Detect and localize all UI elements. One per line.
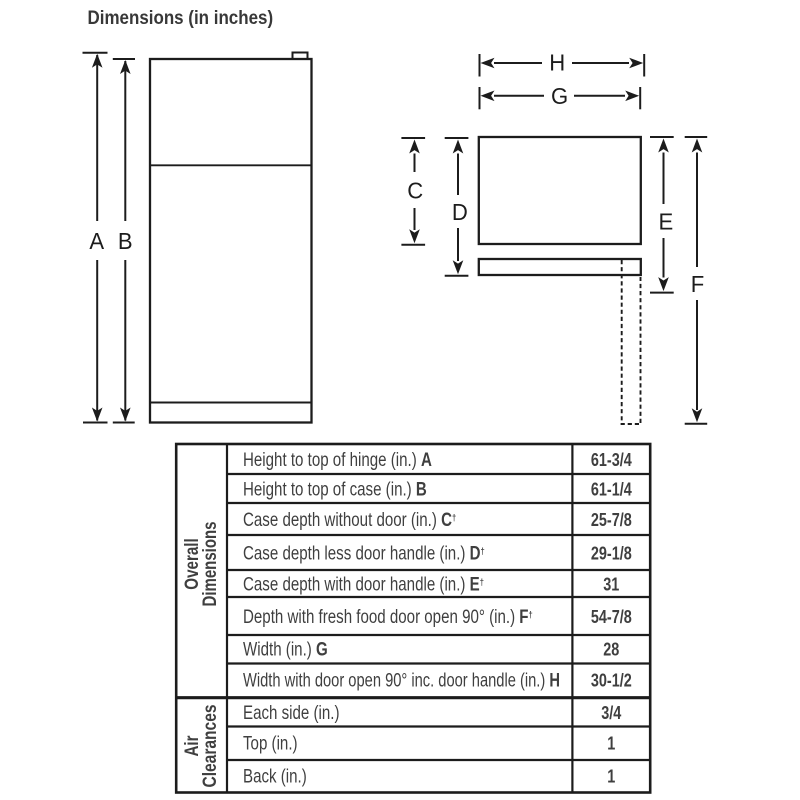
svg-text:28: 28: [603, 639, 619, 660]
svg-text:25-7/8: 25-7/8: [591, 509, 632, 530]
svg-text:Case depth less door handle (i: Case depth less door handle (in.) D†: [243, 542, 485, 564]
svg-text:H: H: [549, 49, 565, 76]
svg-text:Back (in.): Back (in.): [243, 765, 307, 787]
svg-text:61-3/4: 61-3/4: [591, 449, 633, 470]
svg-text:C: C: [407, 177, 423, 204]
svg-text:29-1/8: 29-1/8: [591, 543, 632, 564]
svg-text:D: D: [452, 198, 468, 225]
svg-text:61-1/4: 61-1/4: [591, 479, 633, 500]
svg-text:Height to top of hinge (in.) A: Height to top of hinge (in.) A: [243, 448, 432, 470]
svg-text:Case depth without door (in.): Case depth without door (in.) C†: [243, 508, 456, 530]
svg-text:Each side (in.): Each side (in.): [243, 701, 340, 723]
svg-text:54-7/8: 54-7/8: [591, 606, 632, 627]
svg-text:G: G: [551, 82, 568, 109]
svg-text:B: B: [118, 227, 133, 254]
svg-text:Top (in.): Top (in.): [243, 732, 298, 754]
svg-text:F: F: [691, 270, 705, 297]
svg-text:Width with door open 90° inc.: Width with door open 90° inc. door handl…: [243, 670, 560, 691]
svg-text:3/4: 3/4: [601, 702, 622, 723]
svg-text:31: 31: [603, 574, 619, 595]
svg-text:E: E: [659, 208, 674, 235]
svg-text:30-1/2: 30-1/2: [591, 670, 632, 691]
svg-text:Case depth with door handle (i: Case depth with door handle (in.) E†: [243, 573, 484, 595]
svg-text:1: 1: [607, 766, 615, 787]
svg-text:Width (in.) G: Width (in.) G: [243, 638, 328, 660]
svg-text:Dimensions (in inches): Dimensions (in inches): [88, 6, 274, 28]
svg-text:1: 1: [607, 733, 615, 754]
svg-text:Clearances: Clearances: [199, 704, 221, 787]
svg-text:Dimensions: Dimensions: [199, 521, 220, 606]
svg-text:Depth with fresh food door ope: Depth with fresh food door open 90° (in.…: [243, 605, 533, 627]
svg-text:A: A: [89, 227, 104, 254]
svg-text:Height to top of case (in.) B: Height to top of case (in.) B: [243, 478, 427, 500]
